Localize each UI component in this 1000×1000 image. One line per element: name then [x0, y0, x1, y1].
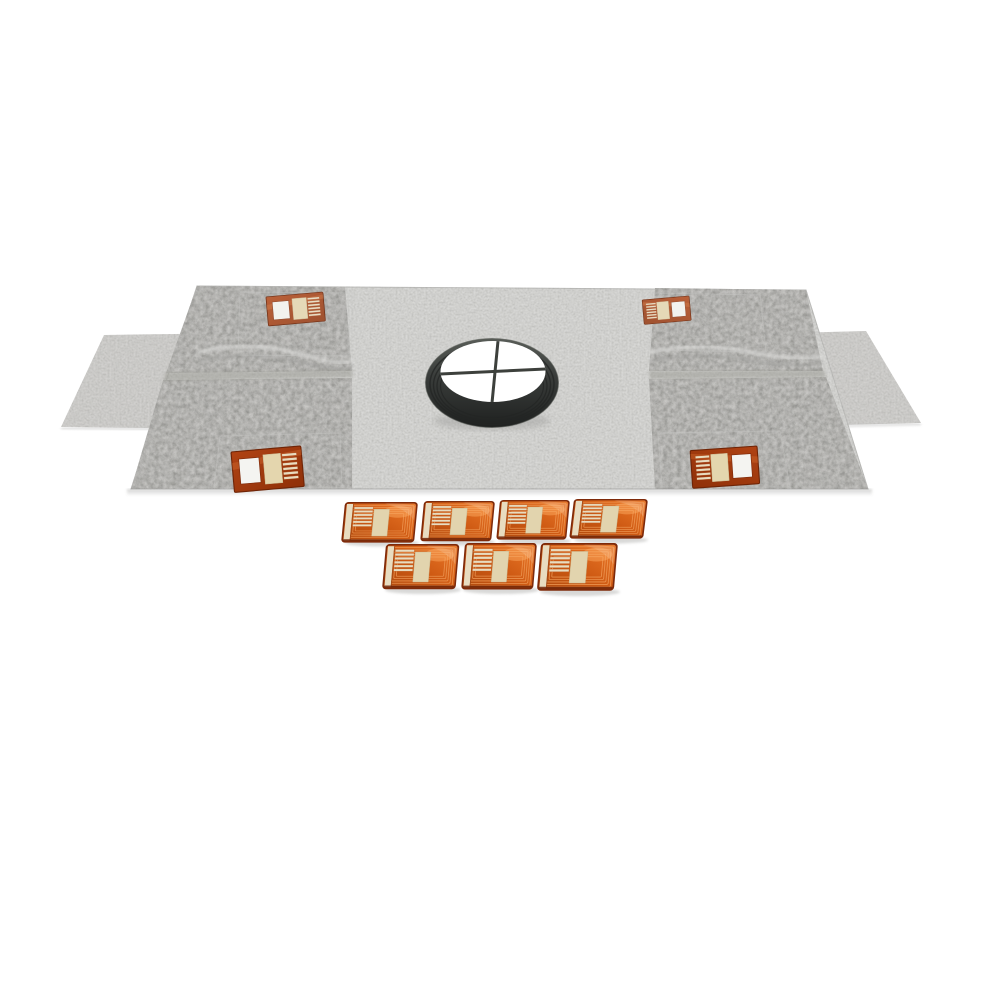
drain-seal-collar	[426, 339, 559, 431]
sensor-pad	[382, 544, 459, 589]
corner-patch-top-right	[642, 296, 691, 324]
corner-patch-bottom-right	[690, 446, 759, 488]
fabric-overlay	[642, 296, 691, 324]
sensor-pad	[461, 543, 537, 590]
sensor-pad	[420, 501, 495, 541]
sensor-pad	[569, 499, 648, 539]
sensor-pad	[341, 502, 418, 543]
product-photo	[0, 0, 1000, 1000]
fabric-overlay	[266, 292, 325, 326]
background	[0, 0, 1000, 1000]
sensor-pad	[537, 543, 618, 591]
pad-row-bottom	[382, 543, 618, 591]
sensor-pad	[496, 500, 570, 540]
corner-patch-top-left	[266, 292, 325, 326]
corner-patch-bottom-left	[231, 446, 304, 493]
